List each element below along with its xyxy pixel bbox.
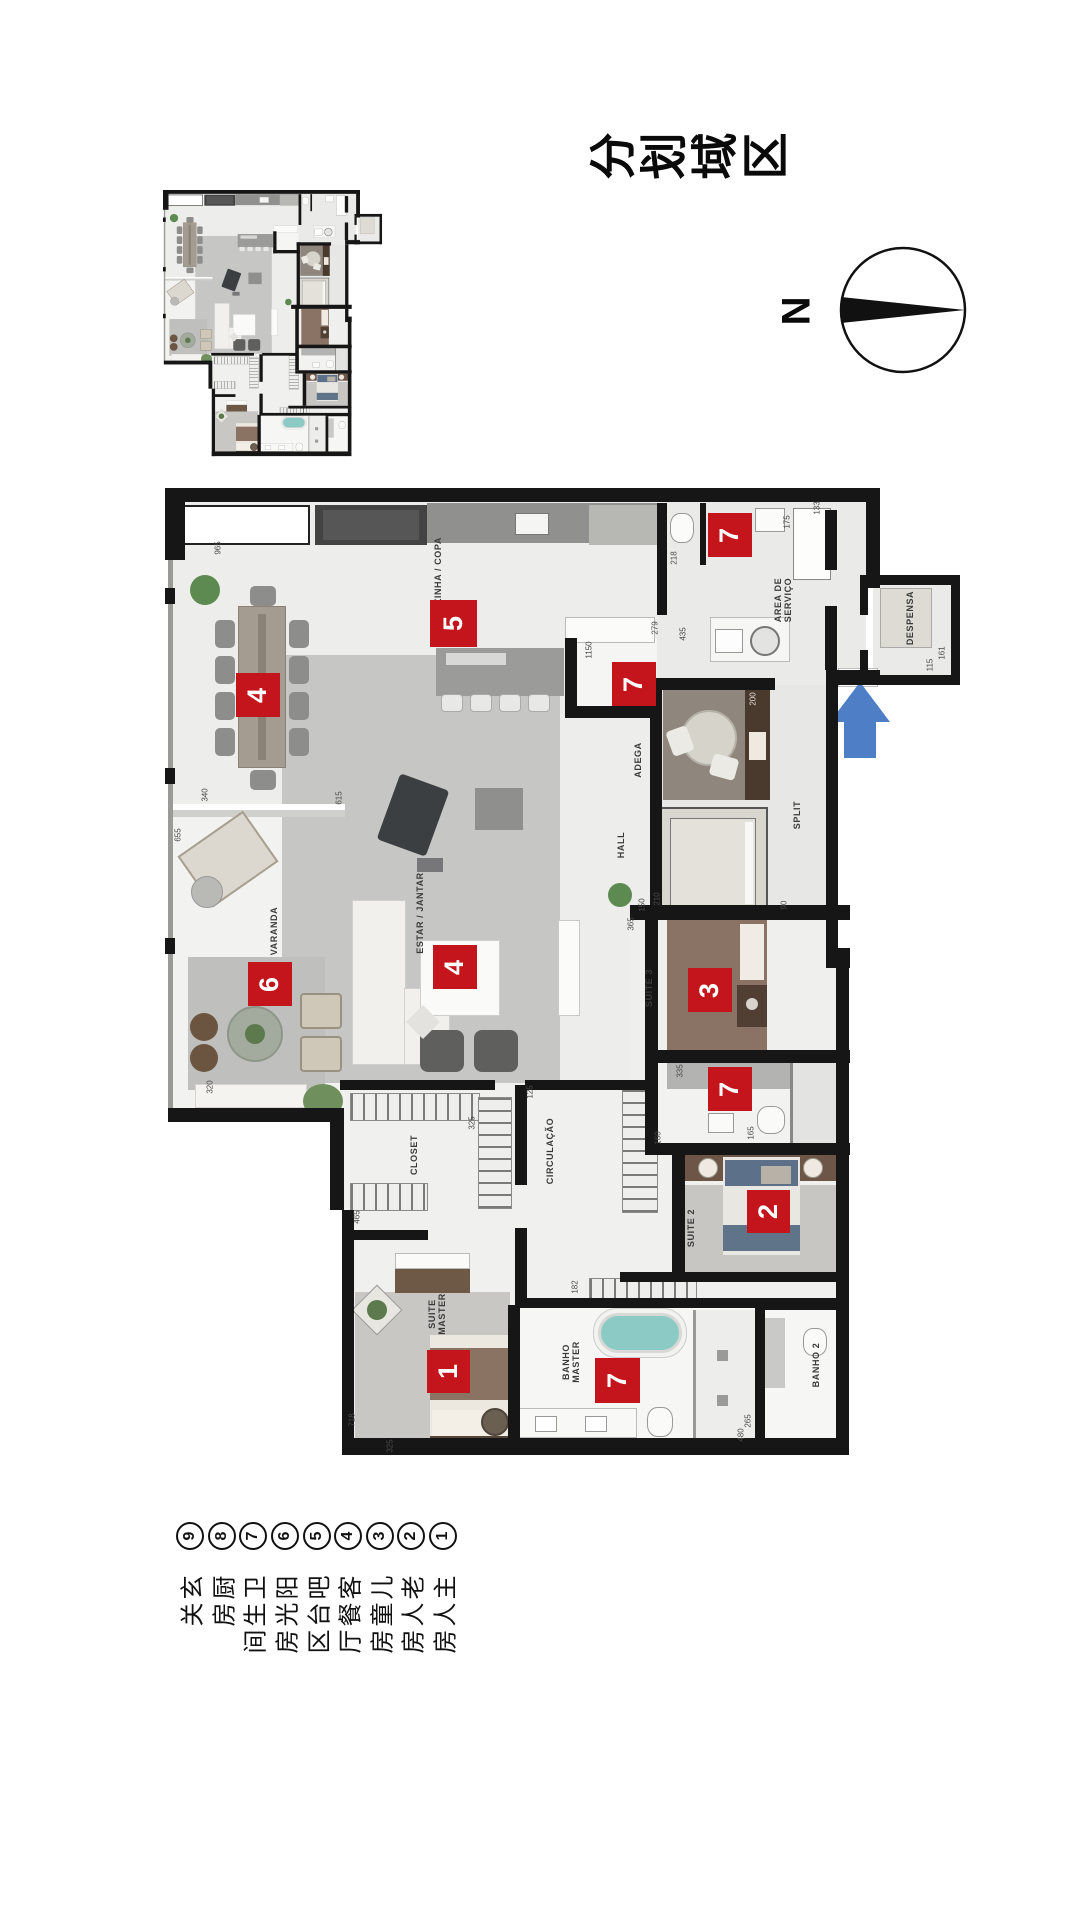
legend-item-3: 3儿童房 [365,1522,395,1655]
dimension-label: 90 [780,901,789,910]
armchair [420,1030,464,1072]
legend-number-circle: 5 [303,1522,331,1550]
legend-item-5: 5吧台区 [302,1522,332,1655]
thumbnail-plan-clone: COZINHA / COPAAREA DESERVIÇODESPENSAADEG… [163,190,382,456]
wall [213,394,235,397]
legend-label-char: 房 [272,1628,299,1656]
legend-item-1: 1主人房 [428,1522,458,1655]
plant [245,1024,265,1044]
bar-stool [247,247,253,252]
kitchen-sink [515,513,549,535]
wall [168,1108,336,1122]
sink [265,445,271,449]
legend-label-char: 童 [366,1601,393,1629]
dimension-label: 335 [676,1064,685,1077]
plant [608,883,632,907]
wicker-chair [300,1036,342,1072]
wall [259,394,262,414]
zone-marker-6: 6 [248,962,292,1006]
sconce [310,374,316,380]
wall [354,214,382,217]
lavabo-counter [273,226,298,233]
shower-floor [309,416,326,453]
legend-label-char: 卫 [240,1574,267,1602]
wall [630,905,850,920]
main-floor-plan: COZINHA / COPAAREA DESERVIÇODESPENSAADEG… [165,488,960,1455]
toilet [670,513,694,543]
wall [354,217,356,225]
shower-niche [315,427,318,430]
piano-bench [417,858,443,872]
wine-rack [749,732,766,760]
dining-chair [197,246,203,254]
legend-label-char: 主 [430,1574,457,1602]
wall [645,1143,850,1155]
dimension-label: 718 [348,1413,357,1426]
wall [165,768,175,784]
legend-label-char: 关 [177,1601,204,1629]
window-wall [164,209,165,361]
wall [165,488,880,502]
dimension-label: 615 [335,791,344,804]
despensa-shelf [360,218,374,235]
legend-number-circle: 9 [176,1522,204,1550]
dimension-label: 465 [353,1210,362,1223]
wall [650,678,662,917]
dimension-label: 218 [670,551,679,564]
legend-item-4: 4客餐厅 [333,1522,363,1655]
legend-label-char: 区 [303,1628,330,1656]
wall [826,670,880,685]
legend-label-char: 生 [240,1601,267,1629]
armchair [233,339,245,351]
island-top [240,235,257,238]
legend-label-char: 餐 [335,1601,362,1629]
dining-chair [177,236,183,244]
room-label: AREA DESERVIÇO [773,578,793,623]
cooktop-grill [323,510,419,540]
legend-label-char: 房 [430,1628,457,1656]
wall [212,451,352,456]
wall [164,361,210,365]
floor-lavabo [277,231,299,251]
dimension-label: 175 [783,515,792,528]
zone-marker-4: 4 [236,673,280,717]
shower-niche [717,1350,728,1361]
legend-number-circle: 3 [366,1522,394,1550]
wall [262,353,296,356]
sconce [803,1158,823,1178]
plant [185,338,191,344]
bath2-counter [328,418,334,437]
thumbnail-floor-plan: COZINHA / COPAAREA DESERVIÇODESPENSAADEG… [163,190,382,456]
wall [380,214,382,244]
legend-label-char: 房 [398,1628,425,1656]
laundry-sink [315,229,323,236]
wall [348,320,352,452]
wine-rack [324,257,329,265]
wall [165,588,175,604]
dimension-label: 165 [747,1126,756,1139]
shower-niche [315,440,318,443]
dining-chair [289,656,309,684]
zone-legend: 1主人房2老人房3儿童房4客餐厅5吧台区6阳光房7卫生间8厨房9玄关 [0,1522,480,1697]
legend-item-8: 8厨房 [207,1522,237,1628]
dimension-label: 265 [744,1414,753,1427]
compass-icon [838,245,969,376]
washer [750,626,780,656]
legend-label-char: 间 [240,1628,267,1656]
wall [700,503,706,565]
bathtub [598,1313,682,1353]
toilet [302,197,309,205]
toilet [757,1106,785,1134]
wall [345,240,360,244]
room-label: CIRCULAÇÃO [545,1118,555,1185]
wall [163,218,166,222]
toilet [647,1407,673,1437]
closet-rack [350,1183,428,1211]
kitchen-cabinets [280,195,299,206]
sofa [215,303,230,348]
compass-north-label: N [772,288,818,334]
dining-chair [289,620,309,648]
zone-marker-7: 7 [595,1358,640,1403]
legend-label-char: 儿 [366,1574,393,1602]
pouf [190,1044,218,1072]
dimension-label: 325 [386,1439,395,1452]
toilet [326,360,334,368]
closet-rack [214,356,250,364]
room-label: ESTAR / JANTAR [415,872,425,954]
side-table [170,297,179,306]
bath3-sink [708,1113,734,1133]
dimension-label: 133 [813,501,822,514]
zone-marker-7: 7 [708,513,752,557]
dining-chair [177,246,183,254]
wall [303,374,307,406]
dining-chair [186,268,193,274]
pillow-gray [761,1166,791,1184]
wall [866,488,880,588]
kitchen-window [165,195,203,206]
dimension-label: 200 [749,692,758,705]
wall [515,1298,757,1308]
pouf [170,334,178,342]
dimension-label: 655 [174,828,183,841]
bathtub [282,417,305,428]
pillow-gray [327,377,335,382]
wall [340,1080,495,1090]
wall [620,1272,849,1282]
bar-stool [263,247,269,252]
wall [951,575,960,685]
bar-stool [441,694,463,712]
dimension-label: 480 [737,1428,746,1441]
dimension-label: 160 [654,1131,663,1144]
wall [645,917,658,1143]
round-rug [481,1408,509,1436]
washer [324,228,332,236]
ottoman [475,788,523,830]
room-label: BANHO 2 [811,1343,821,1388]
dimension-label: 210 [653,892,662,905]
wall [326,416,329,451]
wall [525,1080,647,1090]
bath3-sink [313,362,320,368]
legend-item-9: 9玄关 [175,1522,205,1628]
dining-chair [289,692,309,720]
hall-inner [670,818,756,908]
wall [836,960,849,1438]
wall [345,222,348,240]
entrance-arrow-stem [844,721,876,758]
dimension-label: 325 [468,1116,477,1129]
plant [367,1300,387,1320]
sofa [352,900,406,1065]
ottoman [248,273,261,285]
lamp [746,998,758,1010]
wall [297,242,331,245]
bar-stool [255,247,261,252]
plant [219,413,225,419]
room-label: SUITEMASTER [427,1293,447,1335]
room-label: VARANDA [269,907,279,956]
dimension-label: 365 [627,917,636,930]
wall [326,413,352,416]
legend-label-char: 光 [272,1601,299,1629]
wall [297,242,300,308]
dining-chair [289,728,309,756]
wall [288,406,351,409]
plant [170,214,178,222]
shower-niche [717,1395,728,1406]
tv-bench [558,920,580,1016]
piano-bench [232,292,239,296]
closet-rack [350,1093,480,1121]
shower-glass [790,1063,793,1143]
legend-number-circle: 2 [397,1522,425,1550]
wall [212,389,215,456]
legend-label-char: 阳 [272,1574,299,1602]
wall [163,190,360,194]
dimension-label: 125 [526,1085,535,1098]
legend-label-char: 玄 [177,1574,204,1602]
armchair [474,1030,518,1072]
wall [208,361,212,389]
wall [345,196,348,213]
service-sink [326,196,334,203]
wicker-chair [200,329,212,339]
wall [342,1438,849,1455]
room-label: SUITE 3 [644,969,654,1007]
wall [257,415,260,453]
dining-chair [215,656,235,684]
dimension-label: 279 [651,621,660,634]
dining-chair [250,586,276,606]
lamp [323,330,326,333]
closet-rack [249,358,258,389]
plant [190,575,220,605]
dining-chair [215,620,235,648]
dresser [395,1269,470,1293]
closet-rack [478,1097,512,1209]
wall [825,510,837,570]
pouf [170,343,178,351]
dimension-label: 182 [571,1280,580,1293]
wall [825,606,837,670]
dining-chair [177,256,183,264]
page-title-calligraphy: 分划域区 [583,120,787,192]
room-label: SUITE 2 [686,1209,696,1247]
wall [295,308,299,370]
wall [657,503,667,615]
sink [279,445,285,449]
toilet [296,443,303,451]
wall [259,354,262,382]
legend-number-circle: 1 [429,1522,457,1550]
shower-glass [308,416,309,453]
bar-stool [528,694,550,712]
room-label: BANHOMASTER [561,1341,581,1383]
wall [348,1230,428,1240]
sink [535,1416,557,1432]
dining-chair [197,226,203,234]
entrance-arrow-icon [830,682,890,722]
zone-marker-2: 2 [747,1190,790,1233]
wall [672,1155,685,1272]
bar-stool [239,247,245,252]
tv-bench [271,309,277,335]
wall [291,305,352,309]
legend-label-char: 老 [398,1574,425,1602]
zone-marker-7: 7 [708,1067,752,1111]
balcony-glass-door [164,279,213,281]
wall [515,1085,527,1185]
dimension-label: 1150 [585,641,594,658]
dining-chair [177,226,183,234]
wall [860,585,868,615]
dining-table-runner [189,225,191,265]
hall-slot [745,822,753,904]
legend-label-char: 人 [430,1601,457,1629]
bar-stool [499,694,521,712]
legend-label-char: 厅 [335,1628,362,1656]
zone-marker-4: 4 [433,945,477,989]
closet-rack [214,381,235,389]
zone-marker-1: 1 [427,1350,470,1393]
wall [515,1228,527,1302]
legend-label-char: 吧 [303,1574,330,1602]
hall-slot [323,282,325,305]
bed-master-blanket [236,427,257,441]
bath2-counter [765,1318,785,1388]
wall [310,194,312,211]
zone-division-floorplan-page: 分划域区 N COZINHA / COPAAREA DESERVIÇODESPE… [0,0,1080,1920]
room-label: HALL [616,832,626,858]
bar-stool [470,694,492,712]
sink [585,1416,607,1432]
zone-marker-7: 7 [612,662,656,706]
dimension-label: 150 [638,898,647,911]
wall [163,190,169,210]
legend-number-circle: 6 [271,1522,299,1550]
wicker-chair [200,341,212,351]
wicker-chair [300,993,342,1029]
room-label: DESPENSA [905,591,915,645]
dimension-label: 161 [938,646,947,659]
wall [650,678,775,690]
room-label: ADEGA [633,742,643,778]
kitchen-cabinets [589,505,657,545]
title-char: 区 [726,131,798,182]
wall [648,1050,850,1063]
wall [755,1310,765,1438]
wall [755,1298,849,1310]
wall [330,1108,344,1210]
wall [259,413,326,416]
legend-label-char: 房 [208,1601,235,1629]
wall [299,194,302,225]
dining-chair [215,692,235,720]
dining-chair [197,256,203,264]
coffee-table [233,314,255,335]
pillow-suite3 [740,924,764,980]
kitchen-window [172,505,310,545]
sconce [339,374,345,380]
dining-chair [186,217,193,223]
cooktop-grill [207,196,233,204]
island-top [446,653,506,665]
dimension-label: 320 [206,1080,215,1093]
dresser-top [395,1253,470,1269]
legend-number-circle: 8 [208,1522,236,1550]
toilet [339,421,346,429]
armchair [248,339,260,351]
zone-marker-5: 5 [430,600,477,647]
legend-label-char: 房 [366,1628,393,1656]
dimension-label: 435 [679,627,688,640]
side-table [191,876,223,908]
pillow-suite3 [321,310,328,325]
dimension-label: 115 [926,659,935,672]
shower-floor [793,1063,837,1143]
balcony-glass-door [168,810,345,817]
shower-glass [693,1310,696,1443]
wall [163,267,166,271]
legend-label-char: 人 [398,1601,425,1629]
legend-number-circle: 4 [334,1522,362,1550]
dimension-label: 965 [214,541,223,554]
shower-glass [335,348,336,370]
dining-chair [250,770,276,790]
legend-label-char: 厨 [208,1574,235,1602]
laundry-sink [715,629,743,653]
wall [165,488,185,560]
legend-label-char: 台 [303,1601,330,1629]
legend-item-7: 7卫生间 [238,1522,268,1655]
service-sink [755,508,785,532]
kitchen-sink [259,197,268,203]
wall [211,353,254,356]
wall [508,1305,520,1443]
room-label: SPLIT [792,801,802,830]
wall [163,314,166,318]
shower-floor [336,348,348,370]
room-label: CLOSET [409,1135,419,1175]
sconce [698,1158,718,1178]
wall [565,706,662,718]
